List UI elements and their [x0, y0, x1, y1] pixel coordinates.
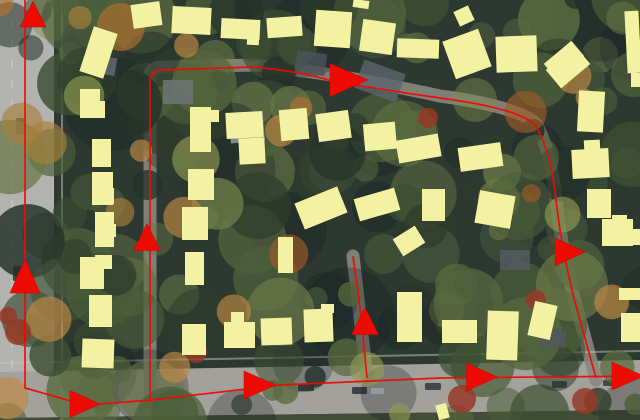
- building-footprint[interactable]: [397, 292, 422, 342]
- building-footprint[interactable]: [224, 322, 255, 348]
- building-footprint[interactable]: [397, 38, 440, 58]
- building-footprint[interactable]: [619, 288, 640, 300]
- building-footprint[interactable]: [631, 229, 640, 245]
- autumn-tree: [522, 184, 541, 203]
- building-footprint[interactable]: [587, 189, 611, 218]
- building-footprint[interactable]: [182, 324, 206, 355]
- map-viewport[interactable]: [0, 0, 640, 420]
- building-footprint[interactable]: [106, 188, 114, 204]
- building-footprint[interactable]: [315, 110, 352, 142]
- building-footprint[interactable]: [95, 255, 112, 269]
- building-footprint[interactable]: [303, 309, 333, 343]
- autumn-tree: [130, 139, 152, 161]
- tree: [231, 394, 252, 415]
- house-roof: [163, 80, 193, 104]
- building-footprint[interactable]: [238, 137, 265, 164]
- building-footprint[interactable]: [621, 313, 640, 342]
- car: [425, 383, 441, 390]
- building-footprint[interactable]: [182, 207, 208, 240]
- building-footprint[interactable]: [577, 90, 605, 132]
- building-footprint[interactable]: [631, 73, 640, 87]
- building-footprint[interactable]: [486, 310, 519, 360]
- building-footprint[interactable]: [495, 35, 537, 72]
- tree: [53, 197, 87, 231]
- house-roof: [295, 50, 328, 76]
- building-footprint[interactable]: [266, 16, 302, 38]
- building-footprint[interactable]: [442, 320, 477, 343]
- building-footprint[interactable]: [92, 139, 111, 167]
- building-footprint[interactable]: [188, 169, 214, 200]
- red-tree: [572, 388, 598, 414]
- building-footprint[interactable]: [89, 295, 112, 327]
- building-footprint[interactable]: [571, 148, 609, 179]
- building-footprint[interactable]: [261, 317, 293, 345]
- building-footprint[interactable]: [82, 338, 115, 368]
- building-footprint[interactable]: [247, 36, 259, 46]
- autumn-tree: [68, 6, 92, 30]
- tree: [273, 379, 299, 405]
- building-footprint[interactable]: [278, 237, 293, 273]
- tree: [132, 170, 162, 200]
- autumn-tree: [159, 352, 190, 383]
- autumn-tree: [545, 197, 581, 233]
- building-footprint[interactable]: [207, 110, 219, 122]
- building-footprint[interactable]: [97, 101, 105, 118]
- building-footprint[interactable]: [107, 224, 116, 237]
- lawn-patch: [453, 78, 497, 122]
- building-footprint[interactable]: [185, 252, 204, 285]
- building-footprint[interactable]: [279, 108, 310, 141]
- building-footprint[interactable]: [231, 312, 244, 323]
- building-footprint[interactable]: [602, 219, 633, 246]
- autumn-tree: [1, 103, 43, 145]
- aerial-map-canvas[interactable]: [0, 0, 640, 420]
- building-footprint[interactable]: [171, 6, 211, 35]
- autumn-tree: [174, 33, 199, 58]
- house-roof: [500, 250, 530, 270]
- building-footprint[interactable]: [363, 122, 397, 152]
- building-footprint[interactable]: [359, 19, 396, 55]
- building-footprint[interactable]: [422, 189, 445, 221]
- red-tree: [418, 108, 438, 128]
- building-footprint[interactable]: [130, 1, 162, 29]
- building-footprint[interactable]: [225, 111, 263, 139]
- red-tree: [448, 385, 476, 413]
- building-footprint[interactable]: [314, 10, 352, 48]
- building-footprint[interactable]: [474, 190, 515, 229]
- autumn-tree: [26, 297, 71, 342]
